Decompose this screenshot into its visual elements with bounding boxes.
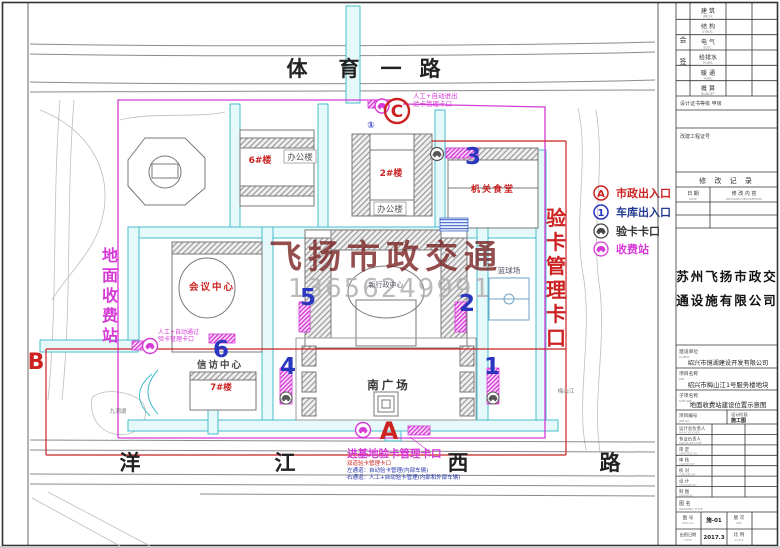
toll-car-icon xyxy=(143,339,158,354)
tb-stage-value: 施工图 xyxy=(730,417,746,424)
vlabel-char: 面 xyxy=(102,266,118,285)
road-bottom-char: 路 xyxy=(600,451,622,475)
legend-1-symbol: 1 xyxy=(598,208,605,219)
tb-discipline-en: ELEC. xyxy=(703,46,712,50)
road-bottom-char: 洋 xyxy=(120,451,141,475)
vlabel-char: 站 xyxy=(102,326,118,345)
vlabel-char: 口 xyxy=(546,326,566,350)
watermark-company: 飞扬市政交通 xyxy=(269,237,503,276)
road-top-char: 一 xyxy=(381,57,402,81)
marker-c-sub: ① xyxy=(367,121,375,131)
garage-exit-2: 2 xyxy=(459,291,475,317)
garage-exit-5: 5 xyxy=(300,285,316,311)
tb-discipline-en: STRUC. xyxy=(702,30,714,34)
tb-jobno-label: 项目编号 xyxy=(679,412,698,419)
tb-revision-title: 修 改 记 录 xyxy=(699,176,755,185)
garage-exit-1: 1 xyxy=(484,354,500,380)
gate-south-title: 进基地验卡管理卡口 xyxy=(347,447,442,460)
legend-toll-label: 收费站 xyxy=(616,242,649,256)
tb-discipline-en: ARCH. xyxy=(703,15,713,19)
vlabel-char: 理 xyxy=(546,278,566,302)
gate-south-sub3: 右通道：人工+自动验卡管理(内部和外部车辆) xyxy=(347,473,460,481)
vlabel-char: 地 xyxy=(102,246,118,265)
tb-revision-date-en: DATE xyxy=(689,197,697,201)
tb-dwg-en: DWG No. xyxy=(682,521,695,525)
tb-sign-en: APPROVED BY xyxy=(679,452,698,456)
legend-check-label: 验卡卡口 xyxy=(616,224,660,238)
tb-dwg-value: 施-01 xyxy=(706,516,722,524)
tb-revision-desc-en: REVISION DESCRIPTION xyxy=(726,197,762,201)
tb-sign-en: AUDITED BY xyxy=(679,462,695,466)
tb-seal: 改建工程证号 xyxy=(680,133,710,140)
tb-jobno-en: JOB No. xyxy=(678,419,690,423)
vlabel-char: 验 xyxy=(546,206,566,230)
gate-south-sub1: 双道验卡管理卡口 xyxy=(347,459,391,467)
marker-b: B xyxy=(28,350,45,375)
garage-exit-6: 6 xyxy=(213,337,229,363)
tb-date-value: 2017.3 xyxy=(703,535,724,541)
tb-date-en: DATE xyxy=(684,538,692,542)
tb-date-label: 出图日期 xyxy=(680,531,697,538)
tb-subjob-value: 地面收费站建设位置示意图 xyxy=(690,400,767,409)
check-car-icon xyxy=(280,392,292,404)
label-office2: 办公楼 xyxy=(377,204,403,215)
label-b2: 2#楼 xyxy=(380,167,403,179)
gate-south-sub2: 左通道：自动验卡管理(内部车辆) xyxy=(347,466,428,474)
tb-job-label: 项目名称 xyxy=(679,370,698,377)
tb-discipline-en: BUDGET xyxy=(701,92,714,96)
tb-company-line1: 苏州飞扬市政交 xyxy=(676,269,778,284)
tb-huiqian-char: 会 xyxy=(680,35,687,44)
marker-c: C xyxy=(391,102,403,122)
check-car-icon xyxy=(487,392,499,404)
tb-job-en: JOB xyxy=(678,377,684,381)
tb-company-line2: 通设施有限公司 xyxy=(676,293,778,308)
label-court: 篮球场 xyxy=(498,265,521,275)
gate-north-line1: 人工+自动进出 xyxy=(413,91,457,100)
tb-sign-en: CHECKED BY xyxy=(679,473,696,477)
tb-cert: 设计证书等级 甲级 xyxy=(680,100,722,107)
road-bottom-char: 江 xyxy=(275,451,296,475)
legend-check-car-icon xyxy=(594,224,608,238)
gate-west-line1: 人工+自动通过 xyxy=(158,328,199,336)
road-top-char: 育 xyxy=(339,57,360,81)
tb-scale-en: SCALE xyxy=(735,538,744,542)
legend-a-symbol: A xyxy=(597,189,605,200)
tb-sign-en: DESIGNED BY xyxy=(679,483,697,487)
vertical-label-left: 地 面 收 费 站 xyxy=(102,246,118,345)
tb-discipline-en: HVAC xyxy=(704,77,713,81)
check-car-icon xyxy=(431,148,444,161)
label-river: 梅山江 xyxy=(558,387,575,395)
road-top-char: 体 xyxy=(287,57,309,81)
marker-a: A xyxy=(380,417,399,445)
tb-title-en: DRAWING TITLE xyxy=(679,507,703,511)
label-office1: 办公楼 xyxy=(287,152,313,163)
tb-title-label: 图 名 xyxy=(679,500,691,507)
label-b6: 6#楼 xyxy=(249,154,272,166)
label-plaza: 南广场 xyxy=(367,378,411,392)
vlabel-char: 管 xyxy=(546,254,566,278)
gate-north-line2: 验卡管理卡口 xyxy=(413,99,452,108)
label-canteen: 机关食堂 xyxy=(471,183,515,195)
legend-toll-car-icon xyxy=(594,242,608,256)
garage-exit-3: 3 xyxy=(465,144,481,170)
label-pond: 九洞湖 xyxy=(110,407,127,415)
vlabel-char: 卡 xyxy=(546,230,566,254)
site-plan-svg: 飞扬市政交通 13656249991 体 育 一 路 洋 江 西 路 6#楼 办… xyxy=(0,0,780,548)
tb-scale-label: 比 例 xyxy=(734,531,745,538)
label-conference: 会议中心 xyxy=(189,281,235,293)
label-b7: 7#楼 xyxy=(210,382,232,393)
tb-sign-en: DISCIPLINE CHIEF xyxy=(679,441,702,445)
tb-sign-en: MAIN DESIGNER xyxy=(679,431,700,435)
tb-revision-desc: 修 改 内 容 xyxy=(732,190,757,197)
vlabel-char: 卡 xyxy=(546,302,566,326)
garage-exit-4: 4 xyxy=(280,354,296,380)
tb-stage-label: 设计阶段 xyxy=(731,411,749,418)
tb-client-en: CLIENT xyxy=(679,355,690,359)
label-admin: 新行政中心 xyxy=(369,280,404,289)
tb-ver-label: 版 次 xyxy=(734,514,745,521)
legend-1-label: 车库出入口 xyxy=(616,205,671,219)
vertical-label-right: 验 卡 管 理 卡 口 xyxy=(546,206,566,350)
legend-a-label: 市政出入口 xyxy=(616,186,671,200)
tb-discipline-en: PLUM. xyxy=(703,61,713,65)
gate-west-line2: 验卡管理卡口 xyxy=(158,335,194,343)
vlabel-char: 收 xyxy=(102,286,118,305)
tb-client-value: 绍兴市镜湖建设开发有限公司 xyxy=(688,359,768,367)
tb-subjob-label: 子项名称 xyxy=(679,392,698,399)
drawing-sheet: 飞扬市政交通 13656249991 体 育 一 路 洋 江 西 路 6#楼 办… xyxy=(0,0,780,548)
tb-ver-en: VER. xyxy=(736,521,743,525)
tb-client-label: 建设单位 xyxy=(679,348,698,355)
vlabel-char: 费 xyxy=(102,306,118,325)
tb-huiqian-char: 签 xyxy=(680,57,687,66)
toll-car-icon xyxy=(356,423,371,438)
tb-job-value: 绍兴市梅山江1号服务楼地块 xyxy=(688,380,769,389)
road-bottom-char: 西 xyxy=(448,451,469,475)
tb-sign-en: DRAWN BY xyxy=(679,494,693,498)
road-top-char: 路 xyxy=(420,57,442,81)
